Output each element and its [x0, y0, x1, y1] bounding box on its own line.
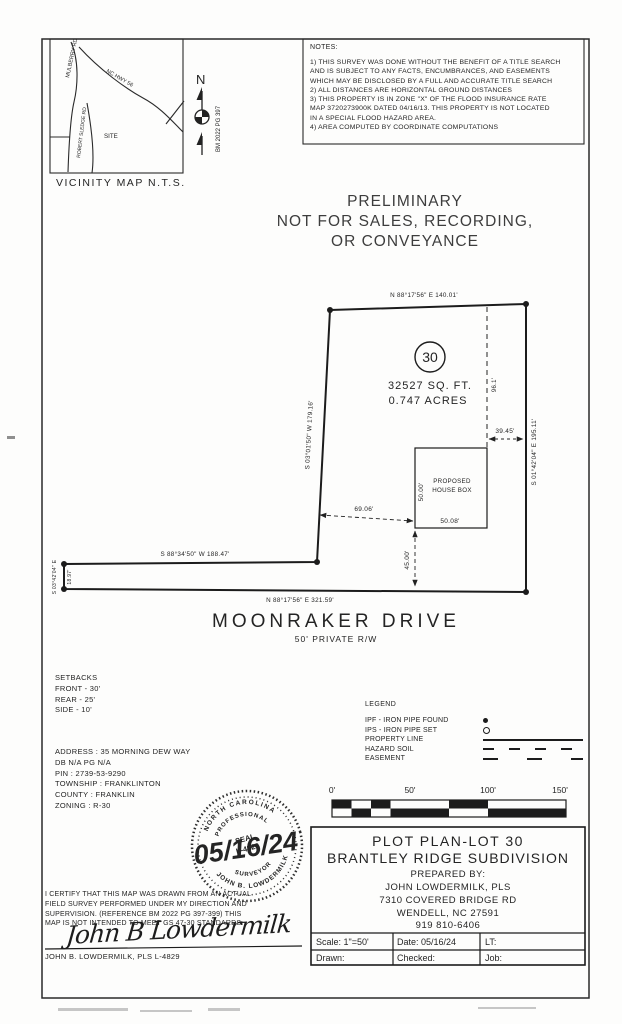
property-line-symbol — [483, 739, 583, 741]
north-arrow: N BM 2022 PG 397 — [195, 72, 222, 155]
legend-label: IPS - IRON PIPE SET — [365, 727, 483, 734]
corner-pin-icon — [61, 561, 67, 567]
notes-title: NOTES: — [310, 44, 338, 51]
legend-item-hazard-soil: HAZARD SOIL — [365, 745, 583, 755]
street-row-width: 50' PRIVATE R/W — [295, 634, 377, 644]
lot-number: 30 — [422, 349, 438, 365]
lot-area-sqft: 32527 SQ. FT. — [388, 380, 472, 392]
dim-house-to-west: 69.06' — [354, 506, 373, 513]
easement-line-symbol — [483, 758, 583, 760]
setbacks-block: SETBACKS FRONT - 30' REAR - 25' SIDE - 1… — [55, 673, 100, 716]
scale-tick-150: 150' — [552, 785, 568, 795]
titleblock-checked: Checked: — [397, 953, 435, 963]
titleblock-city: WENDELL, NC 27591 — [397, 908, 499, 919]
legend-label: PROPERTY LINE — [365, 736, 483, 743]
dim-house-to-road: 45.00' — [404, 550, 411, 569]
road-branch-line — [166, 101, 184, 124]
house-label-line1: PROPOSED — [433, 478, 471, 485]
titleblock-prepared-by: PREPARED BY: — [411, 869, 486, 880]
bearing-left: S 03°01'50" W 179.16' — [303, 400, 315, 469]
lot-area-acres: 0.747 ACRES — [389, 395, 468, 407]
scale-bar: 0' 50' 100' 150' — [329, 785, 568, 817]
title-block: PLOT PLAN-LOT 30 BRANTLEY RIDGE SUBDIVIS… — [311, 827, 585, 965]
corner-pin-icon — [327, 307, 333, 313]
legend-label: IPF - IRON PIPE FOUND — [365, 717, 483, 724]
legend-item-ips: IPS - IRON PIPE SET — [365, 726, 583, 736]
plat-drawing: MULBERRY RD NC HWY 56 ROBERT SLEDGE RD S… — [0, 0, 622, 1024]
legend-label: EASEMENT — [365, 755, 483, 762]
north-arrowhead-icon — [197, 87, 203, 100]
legend: LEGEND IPF - IRON PIPE FOUND IPS - IRON … — [365, 701, 583, 764]
bearing-top: N 88°17'56" E 140.01' — [390, 291, 458, 299]
titleblock-scale: Scale: 1"=50' — [316, 937, 369, 947]
titleblock-lt: LT: — [485, 937, 496, 947]
house-label-line2: HOUSE BOX — [432, 487, 472, 494]
bearing-mid: S 88°34'50" W 188.47' — [160, 550, 229, 558]
iron-pipe-set-icon — [483, 727, 490, 734]
dist-west: 18.97' — [67, 569, 73, 584]
legend-item-ipf: IPF - IRON PIPE FOUND — [365, 716, 583, 726]
north-letter: N — [196, 72, 205, 87]
survey-plat-page: MULBERRY RD NC HWY 56 ROBERT SLEDGE RD S… — [0, 0, 622, 1024]
iron-pipe-found-icon — [483, 718, 488, 723]
bearing-right: S 01°42'04" E 195.11' — [530, 419, 538, 486]
corner-pin-icon — [61, 586, 67, 592]
dim-house-to-east: 39.45' — [495, 428, 514, 435]
svg-text:NORTH CAROLINA: NORTH CAROLINA — [198, 791, 278, 834]
legend-label: HAZARD SOIL — [365, 746, 483, 753]
scale-tick-100: 100' — [480, 785, 496, 795]
dim-line-west — [320, 515, 413, 521]
titleblock-drawn: Drawn: — [316, 953, 345, 963]
titleblock-phone: 919 810-6406 — [416, 920, 481, 931]
legend-title: LEGEND — [365, 701, 583, 708]
legend-item-property-line: PROPERTY LINE — [365, 735, 583, 745]
titleblock-job: Job: — [485, 953, 502, 963]
bearing-west: S 03°42'04" E — [52, 559, 58, 594]
preliminary-stamp: PRELIMINARY NOT FOR SALES, RECORDING, OR… — [245, 192, 565, 252]
corner-pin-icon — [523, 301, 529, 307]
north-arrowhead2-icon — [197, 132, 203, 145]
scale-tick-0: 0' — [329, 785, 336, 795]
hazard-soil-line-symbol — [483, 748, 583, 750]
titleblock-date: Date: 05/16/24 — [397, 937, 456, 947]
legend-item-easement: EASEMENT — [365, 754, 583, 764]
titleblock-street: 7310 COVERED BRIDGE RD — [379, 895, 516, 906]
vicinity-map-title: VICINITY MAP N.T.S. — [56, 177, 186, 189]
road-sledge-label: ROBERT SLEDGE RD — [76, 107, 88, 159]
street-name: MOONRAKER DRIVE — [212, 611, 460, 632]
titleblock-plan-title: PLOT PLAN-LOT 30 — [372, 833, 524, 849]
scale-tick-50: 50' — [404, 785, 415, 795]
address-block: ADDRESS : 35 MORNING DEW WAY DB N/A PG N… — [55, 747, 191, 812]
titleblock-subdivision: BRANTLEY RIDGE SUBDIVISION — [327, 850, 569, 866]
titleblock-preparer: JOHN LOWDERMILK, PLS — [385, 882, 511, 893]
bearing-bottom: N 88°17'56" E 321.59' — [266, 596, 334, 604]
house-width: 50.00' — [418, 483, 425, 502]
surveyor-printed-name: JOHN B. LOWDERMILK, PLS L-4829 — [45, 952, 180, 961]
seal-arc-top: NORTH CAROLINA — [198, 791, 278, 834]
notes-body: 1) THIS SURVEY WAS DONE WITHOUT THE BENE… — [310, 58, 578, 132]
house-length: 50.08' — [440, 518, 459, 525]
bm-reference: BM 2022 PG 397 — [216, 105, 222, 152]
site-label: SITE — [104, 133, 118, 140]
road-hwy56-label: NC HWY 56 — [105, 69, 134, 89]
road-sledge-line — [87, 103, 93, 173]
corner-pin-icon — [523, 589, 529, 595]
road-hwy56-line — [79, 47, 183, 132]
dim-house-to-top: 96.1' — [492, 378, 498, 392]
corner-pin-icon — [314, 559, 320, 565]
